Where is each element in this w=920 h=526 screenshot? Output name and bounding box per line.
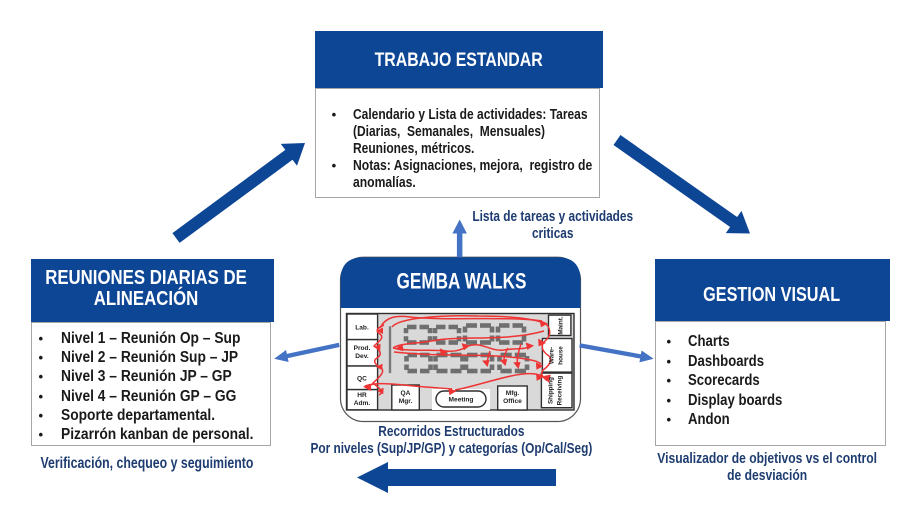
svg-text:Dev.: Dev.: [355, 353, 369, 360]
svg-text:Prod.: Prod.: [354, 345, 371, 352]
svg-text:Receiving: Receiving: [557, 375, 564, 405]
svg-text:Meeting: Meeting: [449, 397, 474, 404]
svg-text:Mfg.: Mfg.: [506, 390, 520, 397]
svg-text:Maint.: Maint.: [558, 316, 565, 334]
svg-text:Office: Office: [503, 398, 522, 405]
svg-text:QC: QC: [357, 376, 367, 383]
svg-text:Lab.: Lab.: [355, 325, 369, 332]
svg-text:GEMBA WALKS: GEMBA WALKS: [397, 270, 527, 295]
svg-text:Ware-: Ware-: [549, 347, 556, 364]
svg-text:Adm.: Adm.: [354, 400, 371, 407]
svg-text:Mgr.: Mgr.: [399, 398, 413, 405]
svg-text:house: house: [558, 346, 565, 365]
svg-text:Shipping: Shipping: [548, 377, 555, 404]
svg-text:HR: HR: [357, 392, 367, 399]
svg-text:QA: QA: [401, 390, 411, 397]
